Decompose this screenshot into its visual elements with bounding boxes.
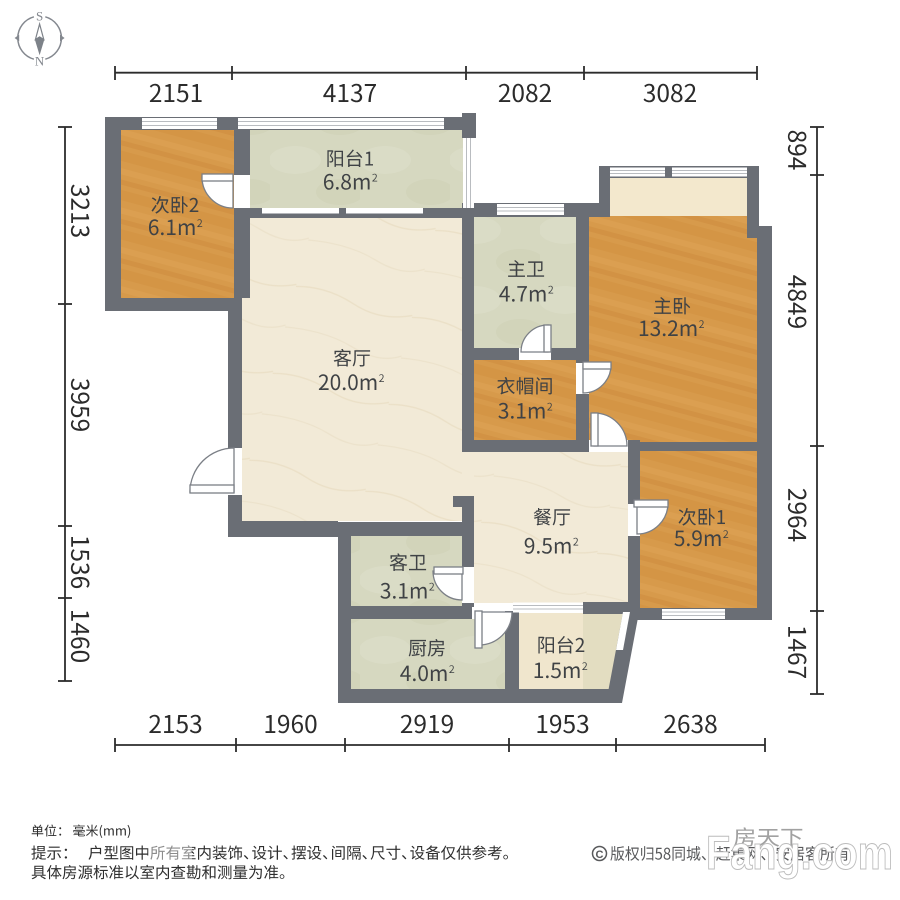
svg-text:C: C: [596, 849, 604, 861]
svg-text:Fang.com: Fang.com: [706, 826, 893, 879]
svg-text:S: S: [36, 9, 43, 24]
svg-text:N: N: [35, 54, 45, 69]
